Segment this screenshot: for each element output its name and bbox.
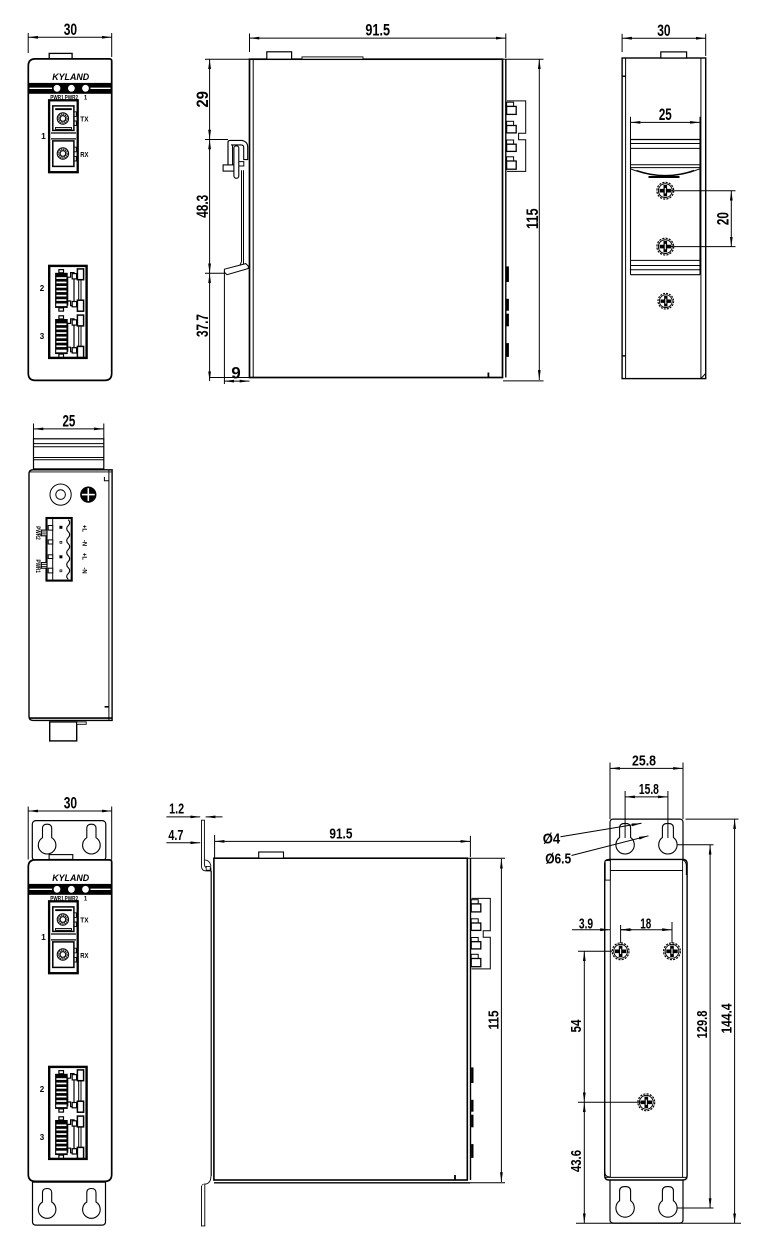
svg-text:48.3: 48.3: [193, 195, 212, 218]
svg-text:144.4: 144.4: [719, 1003, 736, 1034]
svg-text:9: 9: [231, 363, 240, 382]
svg-text:115: 115: [523, 208, 542, 229]
svg-text:25.8: 25.8: [632, 752, 656, 769]
svg-text:25: 25: [659, 105, 672, 124]
svg-text:-N: -N: [81, 567, 87, 573]
svg-text:+L: +L: [81, 553, 87, 561]
svg-text:25: 25: [62, 411, 75, 430]
svg-text:91.5: 91.5: [329, 825, 352, 842]
svg-text:37.7: 37.7: [193, 314, 212, 337]
svg-text:30: 30: [64, 794, 77, 813]
svg-text:115: 115: [486, 1011, 503, 1030]
svg-text:PWR2: PWR2: [34, 526, 40, 540]
svg-text:4.7: 4.7: [168, 827, 183, 844]
svg-text:30: 30: [64, 20, 77, 39]
svg-text:91.5: 91.5: [365, 21, 390, 40]
svg-text:54: 54: [568, 1019, 585, 1033]
svg-text:-N: -N: [81, 540, 87, 546]
svg-text:+L: +L: [81, 525, 87, 533]
svg-text:PWR1: PWR1: [34, 559, 40, 573]
svg-text:15.8: 15.8: [639, 781, 659, 798]
svg-text:Ø4: Ø4: [543, 831, 561, 848]
svg-text:129.8: 129.8: [694, 1011, 711, 1039]
svg-text:20: 20: [713, 212, 732, 225]
svg-text:43.6: 43.6: [568, 1150, 585, 1172]
svg-text:1.2: 1.2: [169, 801, 184, 818]
svg-text:Ø6.5: Ø6.5: [545, 851, 571, 868]
svg-text:29: 29: [193, 91, 212, 107]
svg-text:30: 30: [657, 21, 670, 40]
